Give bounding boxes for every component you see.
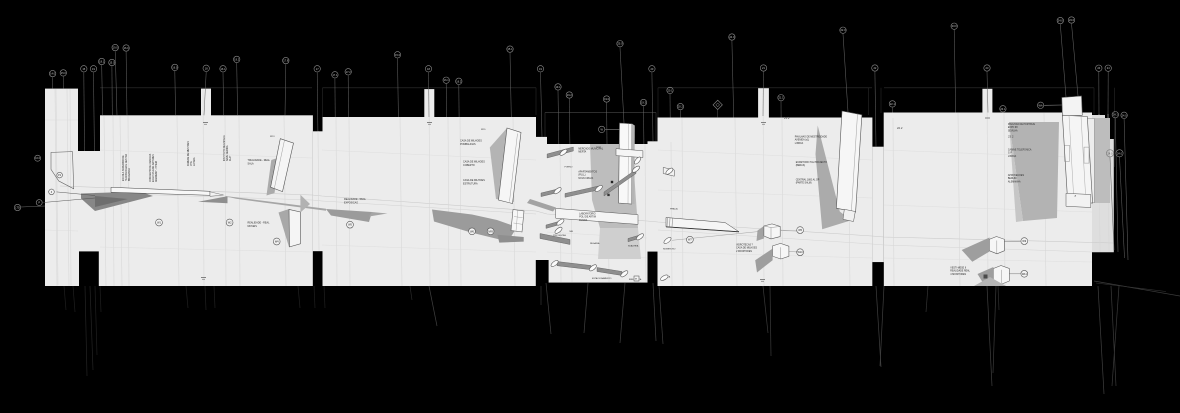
svg-text:24.0: 24.0 [1069,18,1075,22]
svg-text:24.0: 24.0 [1117,151,1123,155]
svg-text:PAREDE DE MESTRES: PAREDE DE MESTRES [187,141,190,166]
svg-text:TECNOLOGIA E GESTAO: TECNOLOGIA E GESTAO [125,154,128,181]
svg-text:19.2: 19.2 [567,93,573,97]
svg-text:W1: W1 [157,222,161,225]
svg-text:NF8: NF8 [488,230,493,233]
svg-text:24.0: 24.0 [1107,151,1113,155]
svg-text:15.0: 15.0 [61,71,67,75]
svg-text:APARTAMENTOS: APARTAMENTOS [578,171,597,174]
svg-text:(PARTE SALM): (PARTE SALM) [796,182,812,185]
svg-text:NOMEROSO: NOMEROSO [663,249,676,251]
svg-text:NOVA CRUZA: NOVA CRUZA [578,177,593,180]
svg-text:19.1: 19.1 [555,85,561,89]
svg-text:25.0: 25.0 [617,42,623,46]
svg-text:18.1: 18.1 [99,60,105,64]
svg-text:POMBALINAS: POMBALINAS [460,143,476,146]
svg-text:W6: W6 [470,230,474,233]
svg-text:NAVE GERIDA: NAVE GERIDA [226,145,229,161]
svg-text:EVORA: EVORA [579,219,588,222]
svg-text:P: P [38,201,40,205]
svg-text:23.1: 23.1 [1000,107,1006,111]
svg-text:VIDROTECAS ?: VIDROTECAS ? [736,244,754,247]
svg-text:20.1: 20.1 [667,88,673,92]
svg-text:MB: MB [570,231,574,233]
svg-text:REALIDADE REAL: REALIDADE REAL [950,270,970,273]
svg-text:LISBOA: LISBOA [1008,155,1017,158]
svg-text:ESTRUTURA: ESTRUTURA [463,182,478,185]
svg-text:17.2: 17.2 [346,70,352,74]
svg-text:SUALHEIA: SUALHEIA [628,245,639,248]
svg-text:22.0: 22.0 [840,28,846,32]
svg-text:REGADIA: REGADIA [590,242,600,245]
svg-text:16.1: 16.1 [220,67,226,71]
svg-text:AMADEMY - ITHEM: AMADEMY - ITHEM [155,161,158,182]
svg-text:W9: W9 [1022,240,1026,243]
svg-text:15.1: 15.1 [507,47,513,51]
svg-text:SALA: SALA [248,162,255,165]
svg-text:LABORATORIO: LABORATORIO [579,213,596,216]
svg-text:LISBOA: LISBOA [795,142,804,145]
svg-text:LATADA: LATADA [193,157,196,166]
svg-text:10.0: 10.0 [35,156,41,160]
svg-text:W5: W5 [348,224,352,227]
svg-text:19.3: 19.3 [641,101,647,105]
svg-text:VESTI-MESE II: VESTI-MESE II [950,268,966,270]
svg-text:W10: W10 [798,251,804,254]
svg-text:FORNO: FORNO [565,167,573,169]
svg-text:16.1: 16.1 [444,78,450,82]
svg-text:2 MONITORES: 2 MONITORES [736,251,752,253]
svg-text:W4: W4 [275,241,279,244]
svg-text:W13: W13 [270,136,275,138]
svg-text:20.2: 20.2 [678,105,684,109]
svg-text:16.2: 16.2 [456,79,462,83]
svg-text:APROVECOES: APROVECOES [1008,174,1025,177]
svg-text:W11: W11 [1022,273,1028,276]
svg-text:EXPO 98: EXPO 98 [1008,127,1018,129]
svg-text:19.0: 19.0 [604,97,610,101]
svg-text:PRACA: PRACA [670,208,678,211]
svg-text:21.1: 21.1 [778,96,784,100]
svg-text:W5: W5 [798,229,802,232]
svg-text:4 MONITORES: 4 MONITORES [950,274,966,276]
svg-text:22.2: 22.2 [897,126,903,130]
svg-text:G.P: G.P [1008,153,1012,155]
svg-text:24.0: 24.0 [1122,113,1128,117]
svg-text:CASA DE MILHOES: CASA DE MILHOES [736,247,757,250]
svg-text:17.1: 17.1 [332,73,338,77]
svg-text:WA: WA [1039,103,1043,107]
svg-text:MOVEIS: MOVEIS [248,225,258,228]
svg-text:CABINE TELEFONICA: CABINE TELEFONICA [1008,149,1032,152]
svg-text:PAVILHAO DE PORT.BUG: PAVILHAO DE PORT.BUG [1008,123,1036,126]
svg-text:SEVILHA: SEVILHA [1008,129,1018,132]
svg-text:24.1: 24.1 [1113,113,1119,117]
svg-text:15.0: 15.0 [395,53,401,57]
svg-text:23.2: 23.2 [1008,135,1014,139]
svg-text:22.1: 22.1 [890,102,896,106]
svg-text:16.0: 16.0 [172,65,178,69]
svg-text:M: M [635,279,637,281]
svg-text:(BERAS): (BERAS) [796,164,806,167]
svg-text:BRAGANCA: BRAGANCA [128,168,131,181]
svg-text:INSTITUTO DE ESPACA: INSTITUTO DE ESPACA [223,135,226,161]
svg-text:ESCOLA SUPERIOR DE: ESCOLA SUPERIOR DE [122,155,125,181]
svg-text:EXACTAS-ENG NATURES: EXACTAS-ENG NATURES [152,154,155,182]
svg-text:ESTACIONAMENTO: ESTACIONAMENTO [592,277,612,280]
svg-text:24.0: 24.0 [1058,19,1064,23]
svg-text:14.0: 14.0 [50,72,56,76]
svg-text:16.0: 16.0 [124,46,130,50]
svg-text:POLI DE ARTIM: POLI DE ARTIM [579,216,596,219]
svg-text:CONCELHO DE CIENCIAS: CONCELHO DE CIENCIAS [149,153,152,182]
svg-text:EXAMTORIO TAL PROJECTO: EXAMTORIO TAL PROJECTO [796,161,828,164]
svg-text:PAVILHAO DE MESTRE/DADE: PAVILHAO DE MESTRE/DADE [795,136,828,139]
svg-text:LTD: LTD [15,206,20,210]
svg-text:BERLIM: BERLIM [1008,178,1017,180]
svg-text:CENTRAL 1800 AL OP: CENTRAL 1800 AL OP [796,179,820,182]
svg-text:W7: W7 [688,239,692,242]
svg-text:W15: W15 [481,129,486,131]
svg-text:19.0: 19.0 [113,46,119,50]
svg-text:23.0: 23.0 [952,24,958,28]
svg-text:UTIL: UTIL [191,160,193,166]
svg-text:FLAT: FLAT [229,155,232,161]
svg-text:19.2: 19.2 [234,57,240,61]
svg-text:15.0: 15.0 [109,61,115,65]
svg-text:24.0: 24.0 [729,35,735,39]
svg-text:21.2: 21.2 [784,116,790,120]
svg-text:PISCOLETAS: PISCOLETAS [553,234,567,237]
svg-text:EXPOSICAO: EXPOSICAO [344,201,358,204]
svg-text:W2: W2 [228,222,232,225]
svg-text:AVENIDA (x1): AVENIDA (x1) [795,139,810,142]
svg-text:ALEMANHA: ALEMANHA [1008,180,1021,183]
svg-text:MERTA: MERTA [578,151,586,154]
svg-text:MERCADO MUNICIPAL: MERCADO MUNICIPAL [578,148,603,151]
svg-text:(FULL): (FULL) [578,175,585,177]
svg-text:COBERTO: COBERTO [463,164,475,167]
svg-text:17.8: 17.8 [283,59,289,63]
